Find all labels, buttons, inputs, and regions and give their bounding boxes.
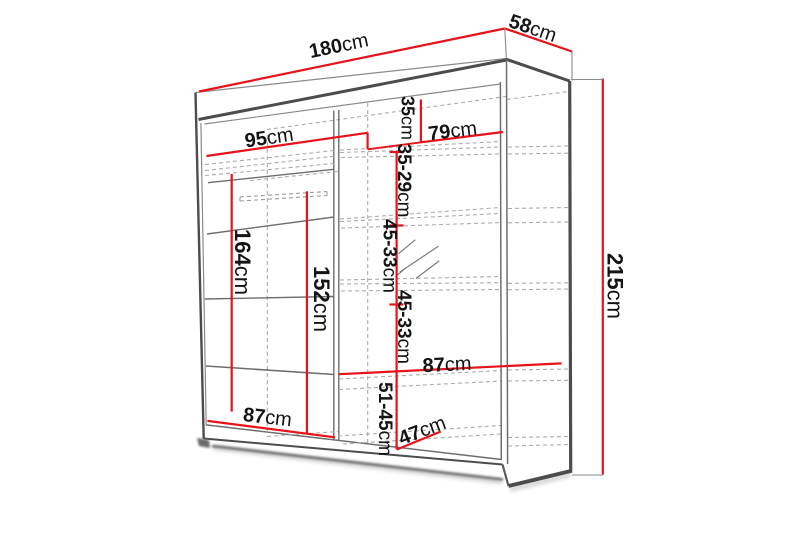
svg-text:45-33cm: 45-33cm bbox=[379, 219, 400, 293]
svg-text:87cm: 87cm bbox=[422, 353, 472, 377]
svg-text:35-29cm: 35-29cm bbox=[393, 144, 414, 218]
svg-text:45-33cm: 45-33cm bbox=[393, 290, 414, 364]
svg-text:152cm: 152cm bbox=[309, 266, 334, 332]
svg-text:51-45cm: 51-45cm bbox=[374, 382, 395, 456]
svg-text:35cm: 35cm bbox=[398, 96, 418, 140]
svg-text:164cm: 164cm bbox=[230, 229, 255, 295]
svg-text:215cm: 215cm bbox=[602, 253, 627, 319]
